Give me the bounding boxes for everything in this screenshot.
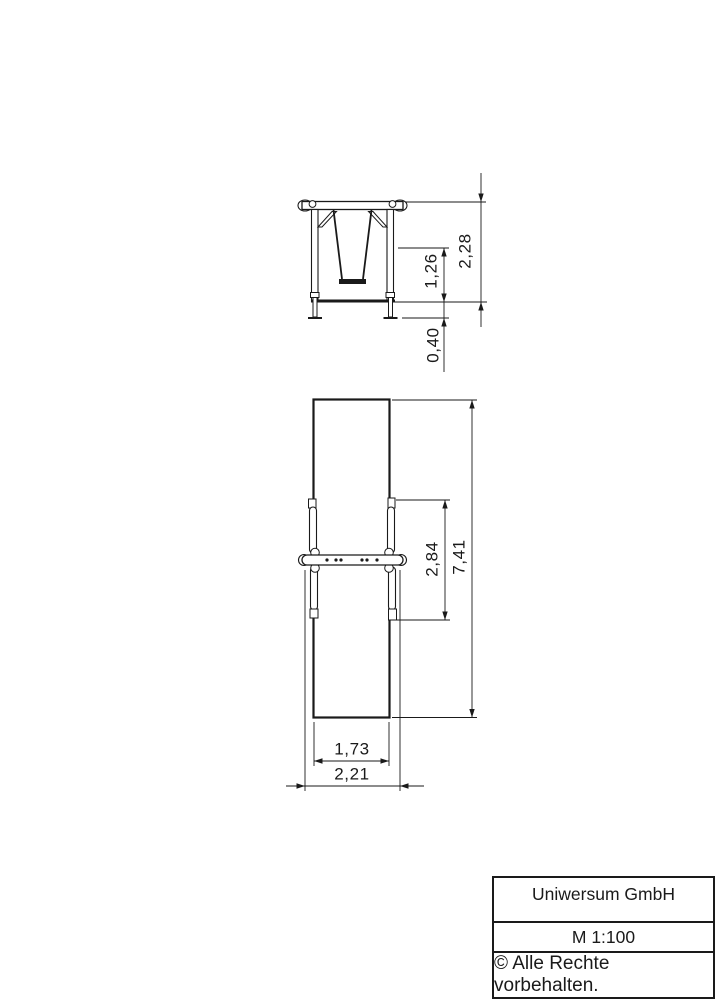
title-block-copyright: © Alle Rechte vorbehalten. bbox=[494, 953, 713, 997]
dim-label-foundation-depth: 0,40 bbox=[425, 327, 442, 363]
dim-label-safety-zone-length: 7,41 bbox=[451, 539, 468, 575]
dim-label-frame-width: 2,21 bbox=[334, 766, 370, 783]
title-block-scale: M 1:100 bbox=[494, 923, 713, 953]
plan-view-drawing bbox=[299, 400, 407, 718]
dim-label-frame-depth: 2,84 bbox=[424, 541, 441, 577]
dim-label-total-height: 2,28 bbox=[457, 233, 474, 269]
dim-label-safety-zone-width: 1,73 bbox=[334, 741, 370, 758]
cad-linework bbox=[0, 0, 717, 1000]
title-block-company: Uniwersum GmbH bbox=[494, 878, 713, 923]
drawing-sheet: 2,28 1,26 0,40 7,41 2,84 1,73 2,21 Uniwe… bbox=[0, 0, 717, 1000]
title-block: Uniwersum GmbH M 1:100 © Alle Rechte vor… bbox=[492, 876, 715, 999]
dim-label-seat-height: 1,26 bbox=[423, 253, 440, 289]
